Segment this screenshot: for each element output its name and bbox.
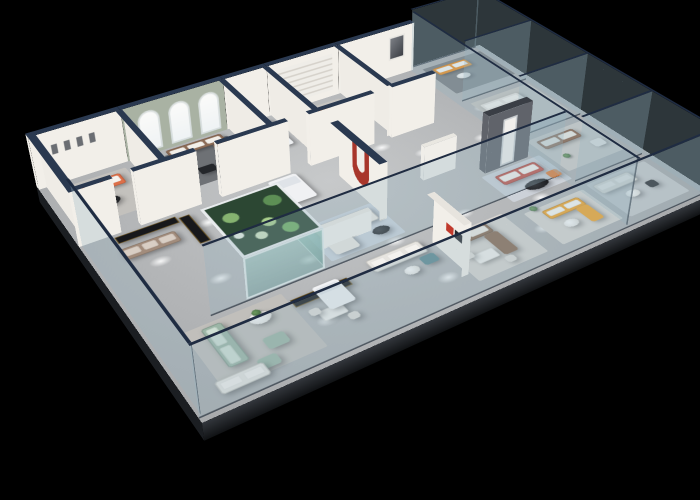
spotlight-pool [141, 250, 180, 273]
glass-left-balustrade [79, 246, 201, 417]
arched-window [167, 98, 193, 144]
floor-plane [36, 45, 700, 423]
room-front-wall-5 [388, 120, 434, 138]
sofa-cushion [158, 233, 177, 244]
sofa-cushion [141, 239, 160, 250]
wall-frames-row [51, 130, 103, 155]
arched-window [197, 89, 221, 134]
glass-left-balustrade-face [69, 178, 201, 415]
wall-artwork [390, 35, 403, 59]
showroom-3d-render [0, 0, 700, 500]
